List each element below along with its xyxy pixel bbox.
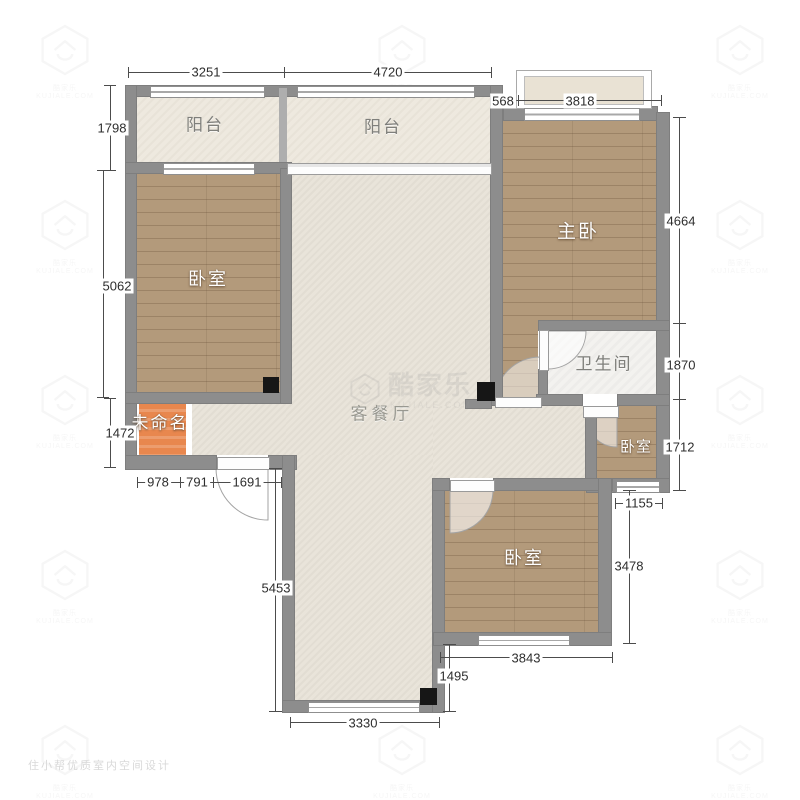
- dim-4720: 4720: [372, 65, 405, 80]
- bedroom-left-balcony-window: [163, 163, 255, 175]
- pillar-marker: [420, 688, 437, 705]
- bedroom-bottom-door-leaf: [450, 480, 495, 492]
- unnamed-room-label: 未命名: [132, 409, 189, 434]
- dim-1691: 1691: [231, 475, 264, 490]
- bedroom-bottom-label: 卧室: [504, 544, 544, 570]
- wall-bedroom-left-right: [280, 168, 292, 404]
- dim-3478: 3478: [613, 559, 646, 574]
- dim-978: 978: [145, 475, 171, 490]
- dim-line-top: [128, 72, 492, 73]
- dim-1155: 1155: [623, 496, 655, 511]
- dim-1798: 1798: [96, 121, 129, 136]
- wall-under-bathroom-left: [536, 394, 583, 406]
- balcony-main-window: [297, 86, 475, 98]
- wall-bedroom-bottom-right: [598, 478, 612, 646]
- kujiale-logo-icon: [348, 372, 382, 406]
- wall-balcony-divider: [279, 88, 287, 168]
- dim-3843: 3843: [510, 651, 543, 666]
- dim-791: 791: [184, 475, 210, 490]
- watermark-site-text: KUJIALE.COM: [388, 400, 472, 410]
- dim-3330: 3330: [347, 716, 380, 731]
- pillar-marker: [477, 382, 495, 401]
- watermark-brand-text: 酷家乐: [388, 372, 472, 398]
- pillar-marker: [263, 377, 279, 393]
- balcony-left-label: 阳台: [186, 111, 224, 136]
- floorplan-canvas: 酷家乐 KUJIALE.COM 酷家乐 KUJIALE.COM 酷家乐 KUJI…: [0, 0, 800, 800]
- dim-4664: 4664: [665, 214, 698, 229]
- wall-living-master: [490, 85, 503, 406]
- wall-bedroom-bottom-top-a: [432, 478, 450, 491]
- dim-5453: 5453: [260, 581, 293, 596]
- bedroom-small-door-leaf: [583, 406, 619, 418]
- living-lower-window: [308, 702, 420, 713]
- balcony-sliding-door: [287, 163, 492, 175]
- bedroom-small-window: [616, 481, 660, 493]
- master-door-leaf: [495, 397, 542, 408]
- bedroom-bottom-window: [478, 635, 570, 646]
- dim-5062: 5062: [101, 279, 134, 294]
- dim-1712: 1712: [664, 440, 697, 455]
- footer-watermark-text: 住小帮优质室内空间设计: [28, 757, 171, 773]
- dim-568: 568: [490, 94, 516, 109]
- bathroom-label: 卫生间: [576, 350, 633, 375]
- wall-bedroom-bottom-top-b: [493, 478, 613, 491]
- wall-bedroom-small-left: [585, 414, 597, 481]
- dim-3251: 3251: [190, 65, 223, 80]
- kujiale-brand-watermark: 酷家乐 KUJIALE.COM: [348, 372, 472, 410]
- dim-1870: 1870: [665, 358, 698, 373]
- wall-right: [656, 112, 670, 493]
- wall-entry-left: [125, 455, 217, 470]
- master-bedroom-window: [524, 108, 640, 121]
- balcony-left-window: [150, 86, 265, 98]
- dim-1495: 1495: [438, 669, 471, 684]
- wall-bedroom-left-bottom: [125, 392, 292, 404]
- dim-1472: 1472: [104, 426, 137, 441]
- wall-bathroom-top: [538, 320, 670, 331]
- dim-3818: 3818: [564, 94, 597, 109]
- bedroom-left-label: 卧室: [188, 265, 228, 291]
- bedroom-bottom-door-arc: [450, 490, 493, 533]
- balcony-main-label: 阳台: [364, 113, 402, 138]
- master-bedroom-label: 主卧: [557, 217, 599, 244]
- wall-under-bathroom-right: [617, 394, 670, 406]
- entry-door-leaf: [217, 457, 270, 470]
- bedroom-small-label: 卧室: [620, 436, 652, 457]
- bathroom-door-leaf: [539, 330, 549, 371]
